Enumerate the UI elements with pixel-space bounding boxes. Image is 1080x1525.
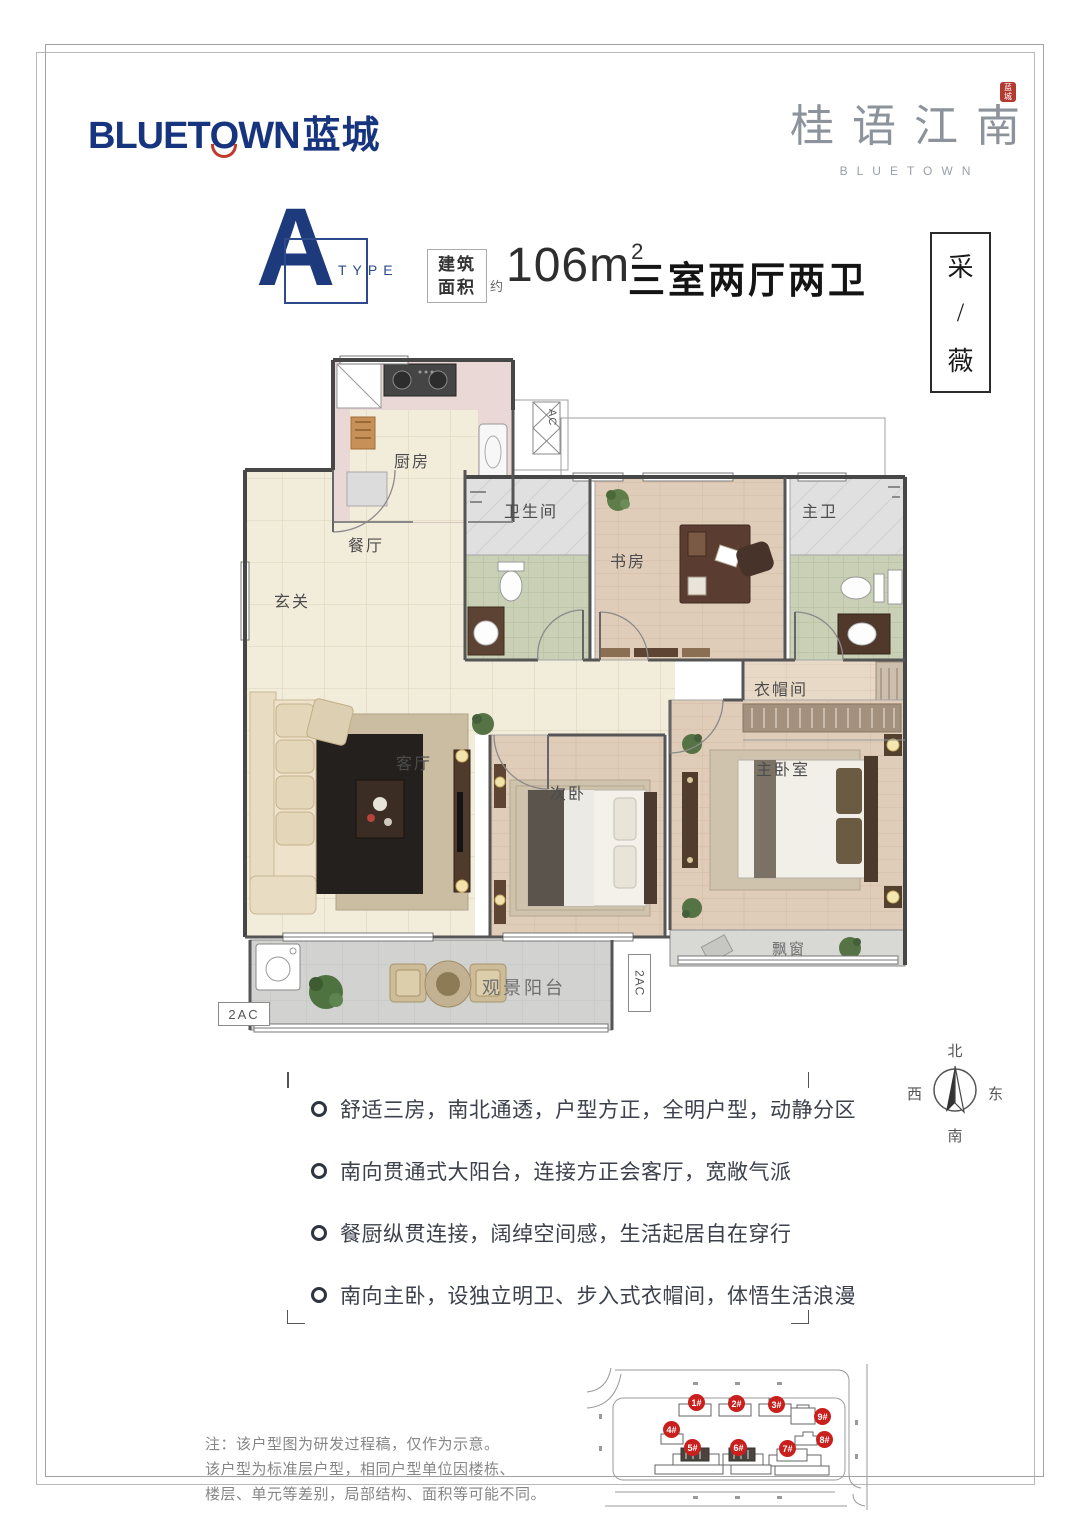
area-label-box: 建筑 面积 [427, 249, 487, 303]
room-label-master-bed: 主卧室 [756, 756, 810, 780]
feature-item: 南向主卧，设独立明卫、步入式衣帽间，体悟生活浪漫 [311, 1280, 856, 1310]
project-logo: 桂 语 江 南 蓝城 BLUETOWN [798, 90, 1012, 178]
building-number: 8# [816, 1431, 833, 1448]
bullet-ring-icon [311, 1225, 327, 1241]
room-label-master-bath: 主卫 [802, 498, 838, 522]
project-char: 江 [914, 90, 958, 154]
room-label-balcony: 观景阳台 [482, 974, 566, 1000]
series-char: 采 [947, 247, 973, 284]
ac-box-right: 2AC [628, 954, 651, 1012]
flyer-page: BLUETOWN 蓝城 桂 语 江 南 蓝城 BLUETOWN A TYPE 建… [0, 0, 1080, 1525]
building-number: 4# [663, 1421, 680, 1438]
ac-unit-label: AC [534, 409, 558, 426]
bluetown-logo-chinese: 蓝城 [303, 104, 381, 159]
building-number: 2# [728, 1395, 745, 1412]
room-label-bay-window: 飘窗 [772, 938, 806, 959]
project-char: 桂 [790, 90, 834, 154]
bullet-ring-icon [311, 1287, 327, 1303]
bluetown-logo-text-1: BLUET [88, 115, 210, 158]
compass-west: 西 [907, 1083, 922, 1104]
approx-label: 约 [490, 276, 503, 295]
room-label-entry: 玄关 [274, 588, 310, 612]
building-number: 3# [768, 1396, 785, 1413]
building-number: 5# [684, 1439, 701, 1456]
feature-item: 南向贯通式大阳台，连接方正会客厅，宽敞气派 [311, 1156, 792, 1186]
feature-text: 南向主卧，设独立明卫、步入式衣帽间，体悟生活浪漫 [340, 1280, 856, 1310]
note-line: 该户型为标准层户型，相同户型单位因楼栋、 [205, 1457, 546, 1482]
floorplan: 厨房 餐厅 玄关 卫生间 书房 主卫 衣帽间 客厅 次卧 主卧室 飘窗 观景阳台… [198, 352, 915, 1040]
room-label-closet: 衣帽间 [754, 676, 808, 700]
siteplan: 1# 2# 3# 9# 4# 8# 5# 6# 7# [585, 1362, 1025, 1522]
second-bedroom-area [490, 735, 665, 937]
room-label-second-bed: 次卧 [550, 780, 586, 804]
bluetown-logo: BLUETOWN 蓝城 [88, 104, 381, 159]
room-label-kitchen: 厨房 [394, 448, 430, 472]
compass-needle-icon [925, 1060, 985, 1124]
living-room-furniture [250, 692, 494, 914]
room-label-study: 书房 [610, 548, 646, 572]
building-number: 1# [688, 1394, 705, 1411]
compass: 北 南 西 东 [905, 1040, 1005, 1146]
feature-list: 舒适三房，南北通透，户型方正，全明户型，动静分区 南向贯通式大阳台，连接方正会客… [287, 1072, 809, 1324]
note-line: 楼层、单元等差别，局部结构、面积等可能不同。 [205, 1482, 546, 1507]
siteplan-drawing [585, 1362, 1025, 1522]
series-char: 薇 [947, 341, 973, 378]
building-number: 9# [814, 1408, 831, 1425]
room-label-bath: 卫生间 [504, 498, 558, 522]
room-label-living: 客厅 [396, 750, 432, 774]
building-number: 6# [730, 1439, 747, 1456]
series-slash: / [957, 298, 964, 328]
note-line: 注：该户型图为研发过程稿，仅作为示意。 [205, 1432, 546, 1457]
feature-item: 餐厨纵贯连接，阔绰空间感，生活起居自在穿行 [311, 1218, 792, 1248]
bracket-bottom-right [791, 1310, 809, 1324]
feature-text: 南向贯通式大阳台，连接方正会客厅，宽敞气派 [340, 1156, 792, 1186]
bullet-ring-icon [311, 1101, 327, 1117]
red-seal: 蓝城 [1000, 82, 1016, 102]
type-word: TYPE [338, 262, 399, 278]
compass-south: 南 [947, 1125, 962, 1146]
bluetown-logo-o-swoosh: O [210, 115, 239, 158]
bracket-top-left [287, 1072, 289, 1088]
bluetown-logo-text-2: WN [238, 115, 299, 158]
project-logo-subtitle: BLUETOWN [798, 164, 1012, 178]
disclaimer-note: 注：该户型图为研发过程稿，仅作为示意。 该户型为标准层户型，相同户型单位因楼栋、… [205, 1432, 546, 1507]
compass-north: 北 [947, 1040, 962, 1061]
master-bedroom-area [670, 700, 905, 930]
room-label-dining: 餐厅 [348, 532, 384, 556]
building-number: 7# [779, 1440, 796, 1457]
bullet-ring-icon [311, 1163, 327, 1179]
area-number: 106m [506, 239, 630, 292]
compass-east: 东 [988, 1083, 1003, 1104]
project-char: 语 [852, 90, 896, 154]
bracket-top-right [808, 1072, 810, 1088]
area-label-line2: 面积 [438, 276, 476, 299]
series-name-box: 采 / 薇 [930, 232, 991, 393]
ac-platforms [513, 400, 885, 477]
feature-text: 餐厨纵贯连接，阔绰空间感，生活起居自在穿行 [340, 1218, 792, 1248]
layout-description: 三室两厅两卫 [628, 250, 868, 304]
feature-text: 舒适三房，南北通透，户型方正，全明户型，动静分区 [340, 1094, 856, 1124]
project-logo-characters: 桂 语 江 南 [798, 90, 1012, 154]
area-label-line1: 建筑 [438, 253, 476, 276]
area-value: 106m2 [506, 238, 644, 293]
feature-item: 舒适三房，南北通透，户型方正，全明户型，动静分区 [311, 1094, 856, 1124]
bracket-bottom-left [287, 1310, 305, 1324]
ac-box-left: 2AC [218, 1002, 270, 1026]
